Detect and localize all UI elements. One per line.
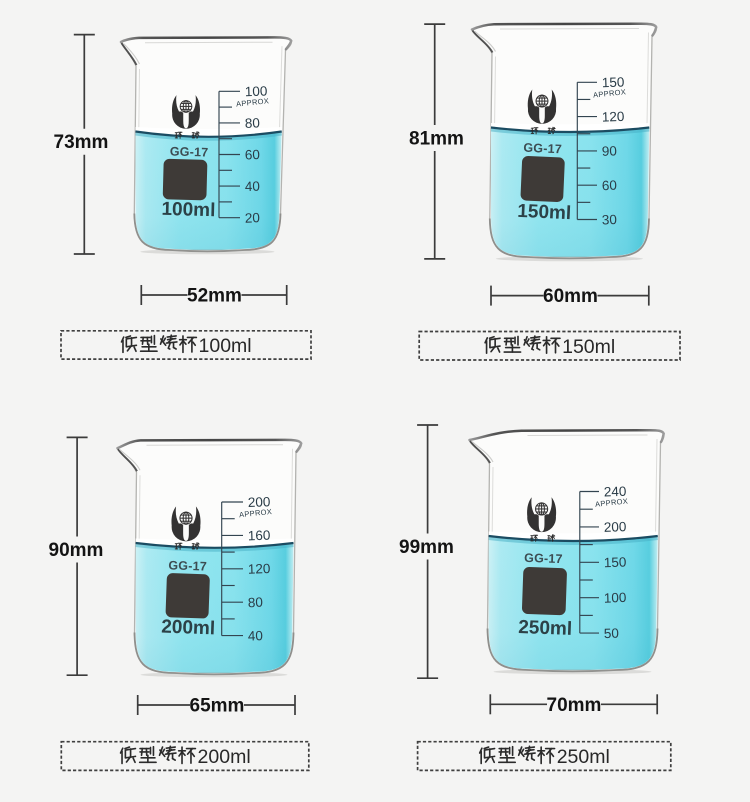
svg-text:GG-17: GG-17 — [523, 141, 562, 157]
svg-text:250ml: 250ml — [518, 617, 573, 640]
svg-text:160: 160 — [248, 528, 271, 544]
svg-text:70mm: 70mm — [547, 695, 602, 716]
svg-text:250ml: 250ml — [557, 746, 610, 768]
svg-text:GG-17: GG-17 — [524, 551, 563, 566]
svg-text:200ml: 200ml — [161, 617, 216, 640]
svg-text:100: 100 — [604, 590, 627, 606]
svg-text:60: 60 — [245, 147, 261, 163]
svg-text:200: 200 — [604, 519, 627, 535]
svg-text:GG-17: GG-17 — [168, 558, 207, 573]
svg-text:150: 150 — [604, 555, 627, 571]
svg-text:80: 80 — [245, 115, 261, 131]
svg-text:50: 50 — [604, 626, 620, 642]
svg-text:30: 30 — [602, 212, 618, 228]
svg-text:52mm: 52mm — [187, 286, 242, 307]
svg-text:65mm: 65mm — [190, 696, 245, 717]
svg-text:120: 120 — [248, 561, 271, 577]
svg-text:150ml: 150ml — [517, 201, 572, 224]
svg-text:90mm: 90mm — [49, 540, 104, 561]
svg-text:150ml: 150ml — [562, 336, 615, 358]
svg-text:100ml: 100ml — [161, 199, 215, 221]
svg-text:60mm: 60mm — [543, 286, 598, 307]
svg-text:40: 40 — [245, 179, 261, 195]
svg-text:60: 60 — [602, 178, 618, 194]
svg-text:40: 40 — [248, 628, 264, 644]
svg-text:120: 120 — [602, 109, 625, 125]
svg-text:100ml: 100ml — [199, 335, 252, 357]
svg-text:GG-17: GG-17 — [170, 144, 209, 159]
svg-text:73mm: 73mm — [54, 132, 109, 153]
svg-text:20: 20 — [245, 210, 261, 226]
svg-text:90: 90 — [602, 143, 618, 159]
svg-text:99mm: 99mm — [399, 537, 454, 558]
svg-text:200ml: 200ml — [198, 746, 251, 768]
svg-text:80: 80 — [248, 595, 264, 611]
svg-text:81mm: 81mm — [409, 129, 464, 150]
